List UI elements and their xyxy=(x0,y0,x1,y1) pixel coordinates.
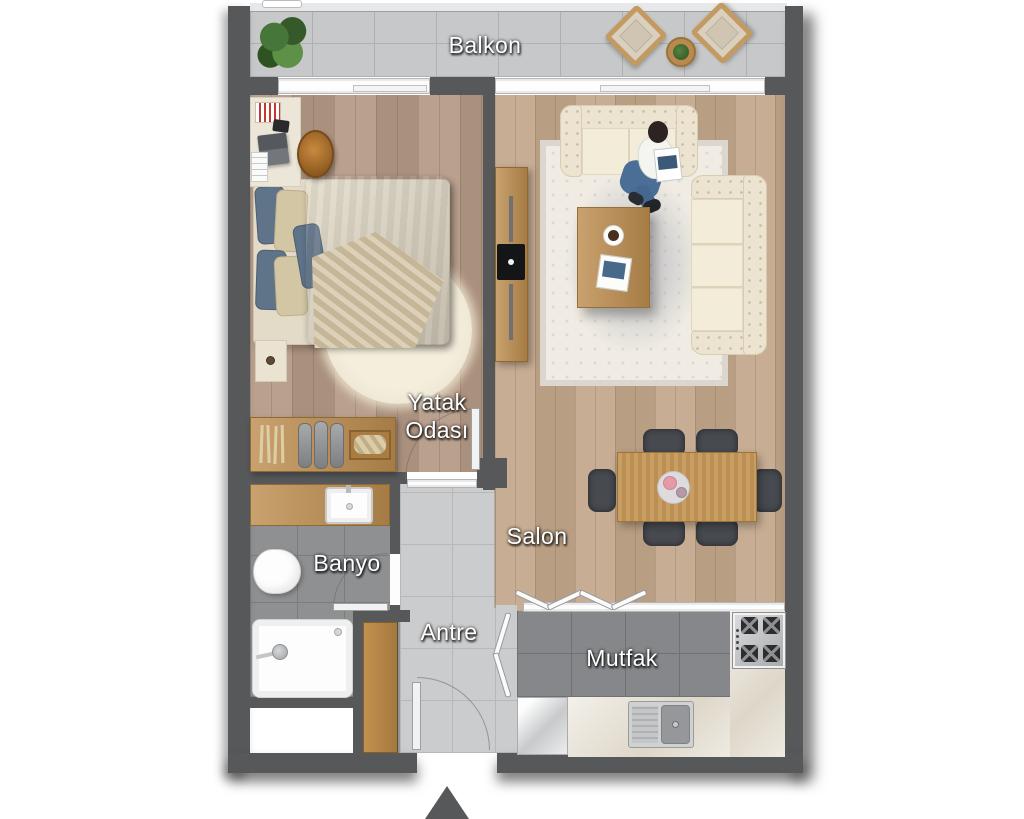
balcony-railing xyxy=(250,3,787,12)
bathroom-door-panel xyxy=(333,603,388,611)
window-stub-middle xyxy=(430,77,495,95)
window-stub-left xyxy=(250,77,278,95)
mutfak-label-text: Mutfak xyxy=(586,645,657,671)
room-label-antre: Antre xyxy=(403,620,495,645)
wardrobe xyxy=(363,622,398,753)
sink-drain xyxy=(346,503,353,510)
bathroom-hall-wall-upper xyxy=(390,484,400,554)
bedroom-door-threshold xyxy=(407,479,477,488)
dresser-decor-stick xyxy=(281,425,285,463)
balkon-label-text: Balkon xyxy=(449,32,522,58)
yatak-odasi-line2: Odası xyxy=(392,418,482,443)
tv-logo xyxy=(508,259,514,265)
floor-plan: Balkon Yatak Odası Salon Banyo Antre Mut… xyxy=(0,0,1024,819)
banyo-label-text: Banyo xyxy=(313,550,380,576)
person-head xyxy=(648,121,668,143)
left-wall xyxy=(228,6,250,773)
bedroom-bathroom-wall xyxy=(250,472,407,484)
cooktop-knob xyxy=(736,647,739,650)
soundbar-lower xyxy=(509,284,513,340)
dresser-figurine xyxy=(298,423,312,468)
dining-chair xyxy=(643,518,685,546)
railing-unit xyxy=(262,0,302,8)
cooktop-burner xyxy=(763,645,780,662)
salon-window-pane xyxy=(600,85,710,92)
kitchen-sink-drain xyxy=(672,721,679,728)
floor-seam xyxy=(494,488,496,608)
cooktop-burner xyxy=(741,617,758,634)
room-label-yatak-odasi: Yatak Odası xyxy=(392,390,482,443)
bedroom-salon-wall xyxy=(483,95,495,490)
room-label-balkon: Balkon xyxy=(435,33,535,58)
lightwell-void xyxy=(250,708,353,753)
room-label-banyo: Banyo xyxy=(300,551,394,576)
dining-chair xyxy=(696,518,738,546)
kitchen-sink-drainboard xyxy=(632,706,658,743)
balcony-table-plant xyxy=(673,44,689,60)
nightstand-knob xyxy=(266,356,275,365)
desk-chair xyxy=(297,130,334,178)
yatak-odasi-line1: Yatak xyxy=(392,390,482,415)
salon-label-text: Salon xyxy=(507,523,568,549)
entry-door-panel xyxy=(412,682,421,750)
desk-phone xyxy=(272,119,290,133)
table-magazine-print xyxy=(602,261,626,280)
room-label-salon: Salon xyxy=(497,524,577,549)
cooktop-knob xyxy=(736,641,739,644)
tub-drain xyxy=(334,628,342,636)
entrance-arrow xyxy=(425,786,469,819)
tub-faucet xyxy=(272,644,288,660)
desk-notepad xyxy=(251,152,268,182)
refrigerator xyxy=(517,697,568,755)
cooktop-burner xyxy=(763,617,780,634)
right-wall xyxy=(785,6,803,773)
balcony-plant xyxy=(254,13,312,73)
sofa-back xyxy=(743,175,767,355)
bedroom-door-jamb xyxy=(477,458,507,488)
wardrobe-shadow-edge xyxy=(397,622,400,753)
soundbar-upper xyxy=(509,196,513,242)
window-stub-right xyxy=(765,77,787,95)
antre-label-text: Antre xyxy=(421,619,478,645)
sink-faucet xyxy=(346,485,351,493)
toilet xyxy=(253,549,301,594)
bottom-wall-left xyxy=(228,753,417,773)
dresser-figurine xyxy=(314,421,328,469)
coffee-cup-drink xyxy=(608,230,619,241)
sofa-seat xyxy=(691,199,743,331)
room-label-mutfak: Mutfak xyxy=(574,646,670,671)
dining-cup-pink xyxy=(663,476,677,490)
dresser-figurine xyxy=(330,423,344,468)
dresser-tray-towels xyxy=(354,435,386,454)
cooktop-knob xyxy=(736,629,739,632)
loveseat-arm-left xyxy=(560,105,582,177)
dining-chair xyxy=(588,469,616,512)
cooktop-knob xyxy=(736,635,739,638)
person-magazine-print xyxy=(657,155,677,170)
cooktop-burner xyxy=(741,645,758,662)
bedroom-window-pane xyxy=(353,85,427,92)
dining-cup-mauve xyxy=(676,487,687,498)
lightwell-top-wall xyxy=(250,697,353,708)
